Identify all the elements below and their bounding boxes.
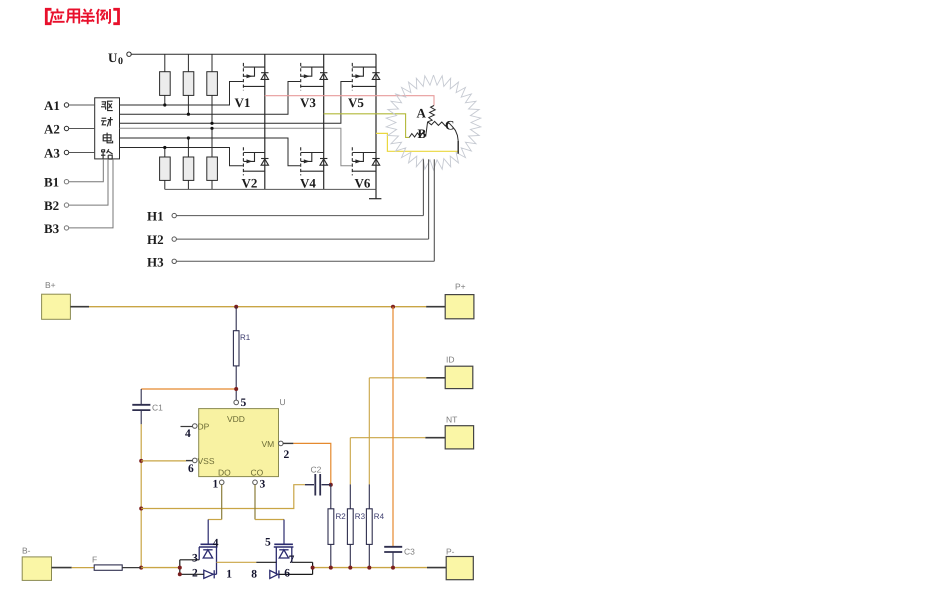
- svg-text:4: 4: [213, 538, 219, 550]
- svg-text:U: U: [108, 50, 118, 65]
- svg-text:H2: H2: [147, 232, 164, 247]
- svg-text:1: 1: [213, 479, 219, 491]
- svg-text:P+: P+: [455, 282, 466, 292]
- svg-text:VM: VM: [262, 439, 275, 449]
- svg-text:B1: B1: [44, 175, 59, 190]
- svg-text:P-: P-: [446, 547, 455, 557]
- svg-text:7: 7: [289, 554, 295, 566]
- svg-text:B+: B+: [45, 280, 56, 290]
- svg-text:C2: C2: [311, 465, 322, 475]
- svg-text:3: 3: [192, 552, 198, 564]
- svg-text:C1: C1: [152, 403, 163, 413]
- svg-text:0: 0: [118, 56, 123, 67]
- svg-text:5: 5: [241, 397, 247, 409]
- svg-text:2: 2: [284, 449, 290, 461]
- svg-text:8: 8: [251, 568, 257, 580]
- svg-text:R2: R2: [336, 512, 347, 521]
- svg-text:1: 1: [226, 568, 232, 580]
- svg-text:V6: V6: [355, 175, 371, 190]
- svg-text:H1: H1: [147, 209, 164, 224]
- svg-text:B: B: [418, 126, 427, 141]
- svg-text:VDD: VDD: [227, 414, 245, 424]
- svg-text:C3: C3: [404, 547, 415, 557]
- svg-text:ID: ID: [446, 355, 455, 365]
- svg-text:B3: B3: [44, 221, 60, 236]
- svg-text:V5: V5: [348, 95, 364, 110]
- svg-text:U: U: [280, 397, 286, 407]
- svg-text:R1: R1: [240, 333, 251, 342]
- svg-text:R3: R3: [355, 512, 366, 521]
- svg-text:V2: V2: [242, 175, 258, 190]
- svg-text:3: 3: [260, 479, 266, 491]
- svg-text:H3: H3: [147, 254, 164, 269]
- svg-text:V1: V1: [235, 95, 251, 110]
- svg-text:R4: R4: [374, 512, 385, 521]
- svg-text:A1: A1: [44, 98, 60, 113]
- svg-text:VSS: VSS: [198, 456, 215, 466]
- svg-text:2: 2: [192, 567, 198, 579]
- svg-text:A: A: [417, 106, 427, 121]
- svg-text:V3: V3: [300, 95, 316, 110]
- svg-text:6: 6: [188, 463, 194, 475]
- svg-text:A3: A3: [44, 146, 60, 161]
- svg-text:F: F: [92, 555, 97, 565]
- svg-text:DP: DP: [198, 422, 210, 432]
- svg-text:4: 4: [185, 428, 191, 440]
- svg-text:DO: DO: [218, 468, 231, 478]
- svg-text:5: 5: [265, 537, 271, 549]
- svg-text:CO: CO: [251, 468, 264, 478]
- svg-text:B-: B-: [22, 546, 31, 556]
- svg-text:NT: NT: [446, 415, 457, 425]
- svg-text:V4: V4: [300, 175, 316, 190]
- svg-text:6: 6: [284, 567, 290, 579]
- svg-text:C: C: [445, 118, 454, 133]
- svg-text:B2: B2: [44, 198, 59, 213]
- svg-text:A2: A2: [44, 122, 60, 137]
